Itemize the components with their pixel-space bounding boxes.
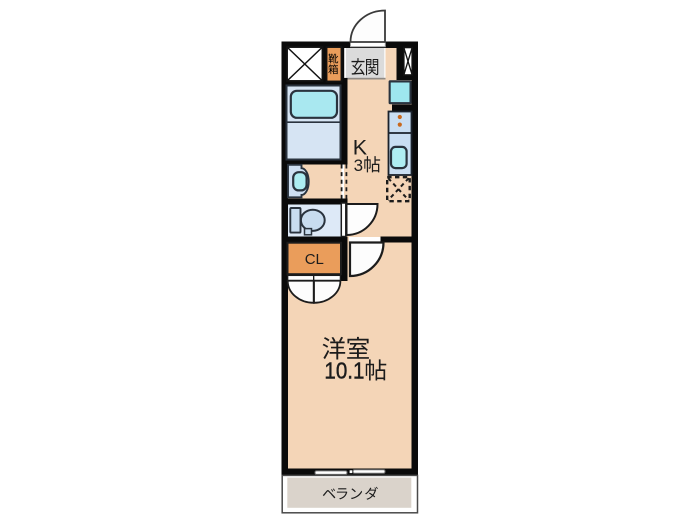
svg-text:10.1: 10.1 — [324, 358, 364, 384]
svg-text:CL: CL — [305, 251, 324, 268]
svg-text:3: 3 — [354, 156, 363, 175]
